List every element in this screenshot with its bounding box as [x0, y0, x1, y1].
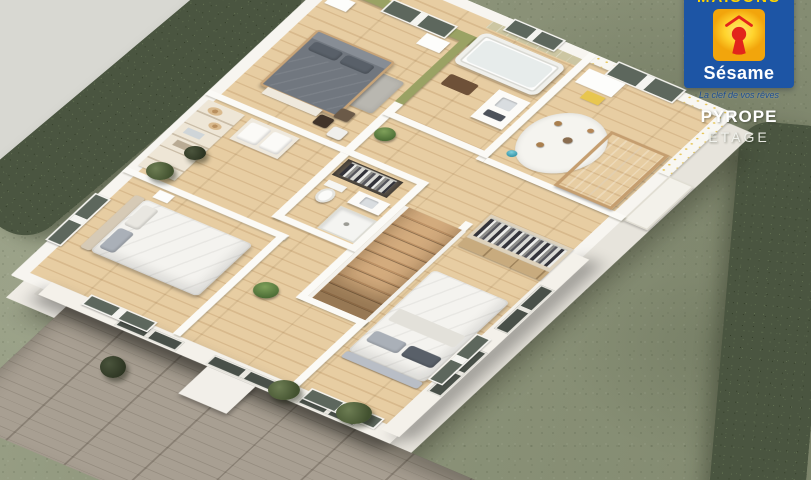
- bed-pillow: [365, 330, 408, 354]
- toy: [586, 128, 596, 134]
- floorplan-render: MAISONS Sésame La clef de vos rêves PYRO…: [0, 0, 811, 480]
- shrub: [184, 146, 206, 160]
- logo-maisons-sesame: MAISONS Sésame La clef de vos rêves PYRO…: [684, 0, 794, 145]
- brand-name: Sésame: [690, 63, 788, 83]
- sink-basin: [494, 97, 518, 112]
- shower-drain: [342, 222, 350, 227]
- toy: [561, 136, 575, 145]
- sink-basin: [359, 197, 380, 209]
- brand-tagline: La clef de vos rêves: [684, 90, 794, 100]
- bed-pillow: [400, 345, 443, 369]
- shrub: [100, 356, 126, 378]
- folded-clothes: [183, 127, 205, 139]
- shrub: [146, 162, 174, 180]
- hat: [206, 121, 224, 132]
- keyhole-icon: [713, 9, 765, 61]
- toy: [553, 120, 564, 127]
- grass-tuft: [268, 380, 300, 400]
- grass-tuft: [336, 402, 372, 424]
- towel: [482, 109, 506, 122]
- brand-top-text: MAISONS: [690, 0, 788, 5]
- plan-name: PYROPE: [684, 107, 794, 127]
- toy: [535, 141, 546, 148]
- keyhole-roof-glyph: [716, 12, 762, 58]
- level-label: ETAGE: [684, 129, 794, 145]
- hat: [205, 106, 225, 118]
- logo-box: MAISONS Sésame: [684, 0, 794, 88]
